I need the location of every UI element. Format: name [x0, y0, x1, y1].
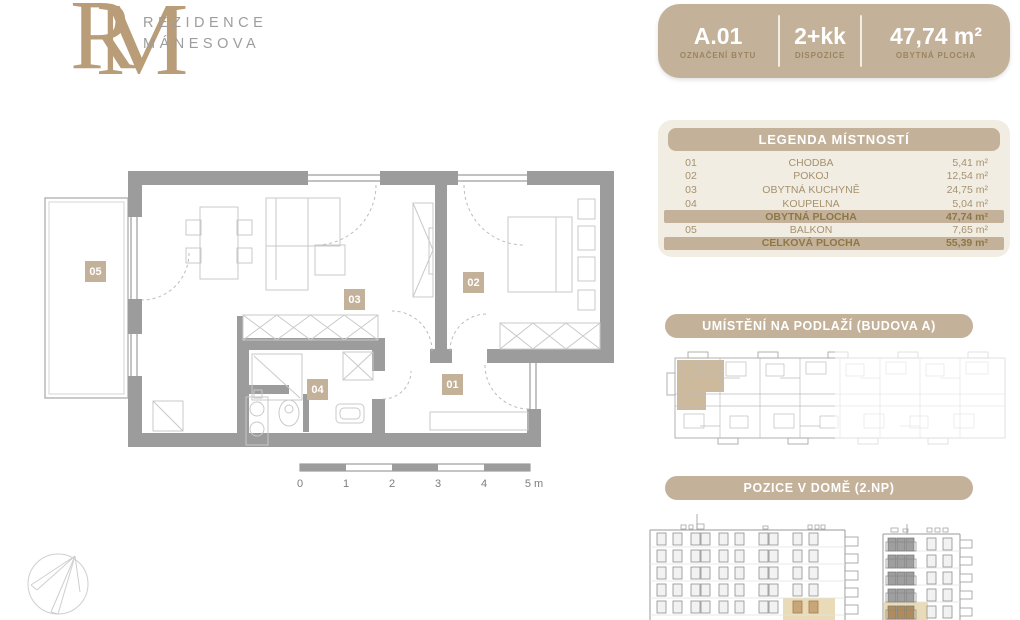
floorplan-sheet: R M REZIDENCE MÁNESOVA A.01 OZNAČENÍ BYT… [0, 0, 1020, 620]
scale-tick-1: 1 [343, 478, 349, 490]
room-badge-bedroom: 02 [463, 272, 484, 293]
section-title-house-position: POZICE V DOMĚ (2.NP) [665, 476, 973, 500]
legend-row-04: 04 KOUPELNA 5,04 m² [658, 197, 1010, 211]
highlighted-unit [677, 360, 724, 410]
unit-summary-badge: A.01 OZNAČENÍ BYTU 2+kk DISPOZICE 47,74 … [658, 4, 1010, 78]
area-section: 47,74 m² OBYTNÁ PLOCHA [862, 4, 1010, 78]
room-badge-balcony: 05 [85, 261, 106, 282]
side-balconies [845, 537, 858, 614]
legend-row-02: 02 POKOJ 12,54 m² [658, 170, 1010, 184]
scale-tick-4: 4 [481, 478, 487, 490]
section-title-floor-location: UMÍSTĚNÍ NA PODLAŽÍ (BUDOVA A) [665, 314, 973, 338]
room-legend-panel: LEGENDA MÍSTNOSTÍ 01 CHODBA 5,41 m² 02 P… [658, 120, 1010, 257]
legend-summary-living-area: OBYTNÁ PLOCHA 47,74 m² [664, 210, 1004, 223]
right-facade [883, 524, 972, 620]
window-grid [927, 538, 952, 618]
scale-tick-5m: 5 m [525, 478, 543, 490]
room-area: 12,54 m² [910, 170, 998, 182]
north-arrow-icon [18, 538, 98, 620]
left-facade [650, 514, 858, 620]
layout-section: 2+kk DISPOZICE [780, 4, 860, 78]
scale-tick-2: 2 [389, 478, 395, 490]
room-number: 05 [670, 224, 712, 236]
brand-name: REZIDENCE MÁNESOVA [143, 13, 267, 55]
room-badge-bath: 04 [307, 379, 328, 400]
brand-name-line1: REZIDENCE [143, 13, 267, 34]
summary-name: OBYTNÁ PLOCHA [712, 211, 910, 223]
roof-details [681, 524, 825, 529]
legend-row-01: 01 CHODBA 5,41 m² [658, 156, 1010, 170]
layout-value: 2+kk [794, 23, 846, 49]
floor-location-miniplan [660, 348, 1015, 448]
room-number: 04 [670, 198, 712, 210]
summary-area: 47,74 m² [910, 211, 998, 223]
room-name: BALKON [712, 224, 910, 236]
apartment-floor-plan: 0 1 2 3 4 5 m [25, 145, 645, 500]
scale-tick-3: 3 [435, 478, 441, 490]
legend-title: LEGENDA MÍSTNOSTÍ [668, 128, 1000, 151]
scale-tick-0: 0 [297, 478, 303, 490]
room-name: OBYTNÁ KUCHYNĚ [712, 184, 910, 196]
balcony-outline [45, 198, 128, 398]
area-value: 47,74 m² [890, 23, 982, 49]
summary-name: CELKOVÁ PLOCHA [712, 237, 910, 249]
room-badge-hall: 01 [442, 374, 463, 395]
area-label: OBYTNÁ PLOCHA [896, 51, 976, 60]
room-number: 02 [670, 170, 712, 182]
balcony-window-clusters [886, 538, 916, 619]
roof-details [891, 528, 948, 532]
scale-bar: 0 1 2 3 4 5 m [297, 464, 543, 490]
window-grid [657, 533, 818, 613]
walls [128, 171, 614, 447]
unit-id-label: OZNAČENÍ BYTU [680, 51, 756, 60]
layout-label: DISPOZICE [795, 51, 845, 60]
room-name: POKOJ [712, 170, 910, 182]
legend-row-03: 03 OBYTNÁ KUCHYNĚ 24,75 m² [658, 183, 1010, 197]
room-name: KOUPELNA [712, 198, 910, 210]
room-area: 7,65 m² [910, 224, 998, 236]
unit-id-section: A.01 OZNAČENÍ BYTU [658, 4, 778, 78]
room-number: 01 [670, 157, 712, 169]
room-area: 5,41 m² [910, 157, 998, 169]
room-area: 24,75 m² [910, 184, 998, 196]
faded-building-half [835, 349, 1008, 446]
room-name: CHODBA [712, 157, 910, 169]
brand-name-line2: MÁNESOVA [143, 34, 267, 55]
room-area: 5,04 m² [910, 198, 998, 210]
legend-summary-total-area: CELKOVÁ PLOCHA 55,39 m² [664, 237, 1004, 250]
side-balconies [960, 540, 972, 616]
unit-id-value: A.01 [694, 23, 743, 49]
building-elevations [645, 512, 1020, 620]
legend-row-05: 05 BALKON 7,65 m² [658, 223, 1010, 237]
summary-area: 55,39 m² [910, 237, 998, 249]
room-badge-living: 03 [344, 289, 365, 310]
room-number: 03 [670, 184, 712, 196]
